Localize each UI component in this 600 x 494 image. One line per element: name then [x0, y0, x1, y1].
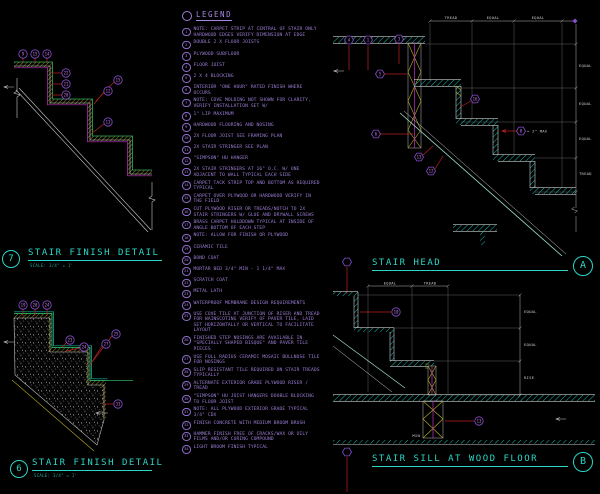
svg-text:33: 33 [116, 401, 121, 406]
cad-sheet: 9 15 14 22 21 20 15 12 13 7 STAIR FINISH… [0, 0, 600, 494]
svg-text:24: 24 [45, 302, 50, 307]
legend-item-number: 3 [182, 52, 191, 61]
svg-text:13: 13 [417, 154, 422, 159]
legend-item-number: 30 [182, 395, 191, 404]
legend-item-text: NOTE: COVE MOLDING NOT SHOWN FOR CLARITY… [194, 98, 323, 109]
legend-item-text: USE COVE TILE AT JUNCTION OF RISER AND T… [194, 312, 323, 334]
legend-item: 10 2X FLOOR JOIST SEE FRAMING PLAN [182, 134, 322, 143]
legend-item: 23 METAL LATH [182, 289, 322, 298]
legend-item: 9 HARDWOOD FLOORING AND NOSING [182, 123, 322, 132]
svg-text:15: 15 [116, 77, 121, 82]
balloon-marker: 8 [517, 127, 526, 135]
stair-head-title: STAIR HEAD [372, 258, 568, 271]
legend-item-text: HARDWOOD FLOORING AND NOSING [194, 123, 274, 129]
legend-item-number: 18 [182, 234, 191, 243]
balloon-marker: 23 [66, 336, 74, 344]
legend-item-text: NOTE: ALL PLYWOOD EXTERIOR GRADE TYPICAL… [194, 407, 323, 418]
legend-item-text: CARPET OVER PLYWOOD OR HARDWOOD VERIFY I… [194, 194, 323, 205]
svg-text:TREAD: TREAD [424, 280, 437, 285]
svg-text:23: 23 [68, 337, 73, 342]
legend-item-number: 8 [182, 112, 191, 121]
legend-item-number: 5 [182, 74, 191, 83]
balloon-marker: 14 [43, 50, 51, 58]
balloon-marker: 15 [114, 76, 122, 84]
legend-item-text: 2X STAIR STRINGERS AT 16" O.C. W/ ONE AD… [194, 167, 323, 178]
legend-item: 16 CUT PLYWOOD RISER OR TREADS/NOTCH TO … [182, 207, 322, 218]
legend-item-text: NOTE: ALLOW FOR FINISH OR PLYWOOD [194, 233, 289, 239]
legend-item-text: CUT PLYWOOD RISER OR TREADS/NOTCH TO 2X … [194, 207, 323, 218]
balloon-marker: 10 [392, 308, 400, 316]
legend-item-number: 20 [182, 256, 191, 265]
dim-end-marker [573, 19, 578, 24]
legend-item: 33 HAMMER FINISH FREE OF CRACKS/WAX OR O… [182, 432, 322, 443]
balloon-marker: 33 [114, 400, 122, 408]
legend-item-text: NOTE: CARPET STRIP AT CENTRAL OF STAIR O… [194, 27, 323, 38]
balloon-marker: 20 [62, 91, 70, 99]
legend-item: 2 DOUBLE 2 X FLOOR JOISTS [182, 40, 322, 49]
legend-item-text: SCRATCH COAT [194, 278, 228, 284]
legend-item-text: FINISHED STEP NOSINGS ARE AVAILABLE IN "… [194, 336, 323, 353]
balloon-marker: 13 [415, 153, 424, 161]
legend-title: LEGEND [196, 10, 232, 21]
svg-text:EQUAL: EQUAL [532, 15, 545, 20]
balloon-marker: 3 [395, 35, 404, 43]
legend-item-text: CERAMIC TILE [194, 245, 228, 251]
legend-item-number: 14 [182, 181, 191, 190]
detail-b-letter: B [573, 452, 593, 472]
stair-head-drawing: TREAD EQUAL EQUAL EQUAL EQUAL EQUAL TREA… [330, 0, 600, 256]
section-flag [340, 446, 354, 494]
legend-item-number: 33 [182, 432, 191, 441]
legend-item-number: 15 [182, 194, 191, 203]
legend-item: 32 FINISH CONCRETE WITH MEDIUM BROOM BRU… [182, 421, 322, 430]
legend-item-text: 2 X 4 BLOCKING [194, 74, 234, 80]
legend-item-text: BRASS CARPET HOLDDOWN TYPICAL AT INSIDE … [194, 220, 323, 231]
legend-item-text: MORTAR BED 3/4" MIN - 1 1/4" MAX [194, 267, 286, 273]
legend-item-number: 2 [182, 41, 191, 50]
legend-item: 31 NOTE: ALL PLYWOOD EXTERIOR GRADE TYPI… [182, 407, 322, 418]
legend-item-number: 1 [182, 28, 191, 37]
legend-item-text: HAMMER FINISH FREE OF CRACKS/WAX OR OILY… [194, 432, 323, 443]
legend-item-text: DOUBLE 2 X FLOOR JOISTS [194, 40, 260, 46]
stair-sill-title: STAIR SILL AT WOOD FLOOR [372, 454, 568, 467]
legend-item-text: ALTERNATE EXTERIOR GRADE PLYWOOD RISER /… [194, 381, 323, 392]
legend-item: 5 2 X 4 BLOCKING [182, 74, 322, 83]
detail-7-scale: SCALE: 3/4" = 1' [30, 263, 73, 268]
legend-item-number: 22 [182, 279, 191, 288]
legend-item: 34 LIGHT BROOM FINISH TYPICAL [182, 445, 322, 454]
legend-item-number: 16 [182, 208, 191, 217]
detail-6-number: 6 [10, 460, 28, 478]
svg-text:14: 14 [45, 51, 50, 56]
svg-text:27: 27 [104, 341, 109, 346]
svg-text:12: 12 [429, 168, 434, 173]
legend-item-text: BOND COAT [194, 256, 220, 262]
balloon-marker: 12 [427, 167, 436, 175]
balloon-marker: 13 [104, 118, 112, 126]
legend-item: 30 "SIMPSON" HU JOIST HANGERS DOUBLE BLO… [182, 394, 322, 405]
legend-item-number: 32 [182, 421, 191, 430]
detail-6-title: STAIR FINISH DETAIL [32, 458, 152, 471]
balloon-marker: 6 [372, 130, 381, 138]
legend-item-number: 21 [182, 267, 191, 276]
legend-item-text: CARPET TACK STRIP TOP AND BOTTOM AS REQU… [194, 181, 323, 192]
svg-text:EQUAL: EQUAL [579, 63, 592, 68]
legend-item-text: "SIMPSON" HU JOIST HANGERS DOUBLE BLOCKI… [194, 394, 323, 405]
svg-text:24: 24 [82, 344, 87, 349]
stair-finish-detail-7-drawing: 9 15 14 22 21 20 15 12 13 [0, 30, 180, 245]
legend-item-text: WATERPROOF MEMBRANE DESIGN REQUIREMENTS [194, 301, 306, 307]
svg-text:TREAD: TREAD [579, 171, 592, 176]
legend-item: 20 BOND COAT [182, 256, 322, 265]
legend-item-text: 2X FLOOR JOIST SEE FRAMING PLAN [194, 134, 283, 140]
legend-item-text: USE FULL RADIUS CERAMIC MOSAIC BULLNOSE … [194, 355, 323, 366]
legend-item-number: 28 [182, 368, 191, 377]
balloon-marker: 25 [112, 330, 120, 338]
legend-item: 11 2X STAIR STRINGER SEE PLAN [182, 145, 322, 154]
svg-text:20: 20 [64, 92, 69, 97]
detail-6-scale: SCALE: 3/4" = 1' [34, 473, 77, 478]
legend-item: 15 CARPET OVER PLYWOOD OR HARDWOOD VERIF… [182, 194, 322, 205]
legend-item-number: 25 [182, 312, 191, 321]
legend-item-number: 17 [182, 221, 191, 230]
legend-item-number: 7 [182, 99, 191, 108]
svg-text:20: 20 [33, 302, 38, 307]
legend-item-text: PLYWOOD SUBFLOOR [194, 52, 240, 58]
balloon-marker: 19 [19, 301, 27, 309]
svg-text:21: 21 [64, 81, 69, 86]
svg-text:13: 13 [106, 119, 111, 124]
legend-header: LEGEND [182, 10, 322, 21]
stair-sill-drawing: EQUAL TREAD EQUAL EQUAL RISE MIN [330, 280, 600, 450]
legend-item: 28 SLIP RESISTANT TILE REQUIRED ON STAIR… [182, 368, 322, 379]
legend-item: 1 NOTE: CARPET STRIP AT CENTRAL OF STAIR… [182, 27, 322, 38]
legend-item: 24 WATERPROOF MEMBRANE DESIGN REQUIREMEN… [182, 301, 322, 310]
legend-bullet-icon [182, 11, 192, 21]
detail-7-title: STAIR FINISH DETAIL [28, 248, 162, 261]
svg-text:10: 10 [394, 309, 399, 314]
legend-item: 3 PLYWOOD SUBFLOOR [182, 52, 322, 61]
legend-item-number: 19 [182, 245, 191, 254]
balloon-marker: 15 [31, 50, 39, 58]
balloon-marker: 12 [104, 87, 112, 95]
legend-item: 12 "SIMPSON" HU HANGER [182, 156, 322, 165]
legend-item-number: 13 [182, 168, 191, 177]
min-note: MIN [412, 433, 420, 438]
legend-item-text: METAL LATH [194, 289, 223, 295]
svg-text:16: 16 [473, 96, 478, 101]
balloon-marker: 4 [345, 36, 354, 44]
legend-item-text: INTERIOR "ONE HOUR" RATED FINISH WHERE O… [194, 85, 323, 96]
svg-text:EQUAL: EQUAL [487, 15, 500, 20]
svg-text:EQUAL: EQUAL [524, 342, 537, 347]
legend: LEGEND 1 NOTE: CARPET STRIP AT CENTRAL O… [182, 10, 322, 454]
balloon-marker: 16 [471, 95, 480, 103]
legend-item-number: 6 [182, 86, 191, 95]
legend-item-number: 11 [182, 146, 191, 155]
legend-item-text: LIGHT BROOM FINISH TYPICAL [194, 445, 269, 451]
legend-item-text: FLOOR JOIST [194, 63, 226, 69]
detail-a-letter: A [573, 256, 593, 276]
legend-item: 27 USE FULL RADIUS CERAMIC MOSAIC BULLNO… [182, 355, 322, 366]
balloon-marker: 24 [43, 301, 51, 309]
legend-item: 8 1" LIP MAXIMUM [182, 112, 322, 121]
svg-text:EQUAL: EQUAL [579, 136, 592, 141]
legend-item: 21 MORTAR BED 3/4" MIN - 1 1/4" MAX [182, 267, 322, 276]
svg-text:RISE: RISE [524, 375, 535, 380]
legend-item: 6 INTERIOR "ONE HOUR" RATED FINISH WHERE… [182, 85, 322, 96]
legend-item-number: 26 [182, 336, 191, 345]
legend-item-number: 23 [182, 290, 191, 299]
legend-item-text: SLIP RESISTANT TILE REQUIRED ON STAIR TR… [194, 368, 323, 379]
legend-item-number: 10 [182, 134, 191, 143]
legend-item-number: 34 [182, 445, 191, 454]
legend-item: 4 FLOOR JOIST [182, 63, 322, 72]
legend-item-number: 4 [182, 63, 191, 72]
balloon-marker: 22 [62, 69, 70, 77]
svg-text:EQUAL: EQUAL [384, 280, 397, 285]
legend-item: 25 USE COVE TILE AT JUNCTION OF RISER AN… [182, 312, 322, 334]
svg-text:15: 15 [33, 51, 38, 56]
balloon-marker: 5 [376, 70, 385, 78]
legend-item-text: "SIMPSON" HU HANGER [194, 156, 248, 162]
svg-text:12: 12 [106, 88, 111, 93]
legend-item-text: 2X STAIR STRINGER SEE PLAN [194, 145, 269, 151]
balloon-marker: 24 [80, 343, 88, 351]
legend-item-number: 31 [182, 408, 191, 417]
legend-item-number: 24 [182, 301, 191, 310]
legend-item: 14 CARPET TACK STRIP TOP AND BOTTOM AS R… [182, 181, 322, 192]
legend-item: 29 ALTERNATE EXTERIOR GRADE PLYWOOD RISE… [182, 381, 322, 392]
svg-text:19: 19 [21, 302, 26, 307]
legend-item-text: FINISH CONCRETE WITH MEDIUM BROOM BRUSH [194, 421, 306, 427]
legend-item: 22 SCRATCH COAT [182, 278, 322, 287]
balloon-marker: 21 [62, 80, 70, 88]
svg-text:EQUAL: EQUAL [524, 309, 537, 314]
legend-item: 26 FINISHED STEP NOSINGS ARE AVAILABLE I… [182, 336, 322, 353]
svg-text:13: 13 [477, 418, 482, 423]
balloon-marker: 1 [364, 36, 373, 44]
leader-lines [349, 44, 516, 169]
legend-item: 13 2X STAIR STRINGERS AT 16" O.C. W/ ONE… [182, 167, 322, 178]
svg-text:22: 22 [64, 70, 69, 75]
legend-item-number: 12 [182, 157, 191, 166]
balloon-marker: 20 [31, 301, 39, 309]
legend-item-number: 9 [182, 123, 191, 132]
svg-text:TREAD: TREAD [445, 15, 458, 20]
balloon-marker: 27 [102, 340, 110, 348]
legend-item: 18 NOTE: ALLOW FOR FINISH OR PLYWOOD [182, 233, 322, 242]
svg-text:EQUAL: EQUAL [579, 101, 592, 106]
balloon-marker: 13 [475, 417, 483, 425]
legend-item: 19 CERAMIC TILE [182, 245, 322, 254]
legend-list: 1 NOTE: CARPET STRIP AT CENTRAL OF STAIR… [182, 27, 322, 454]
detail-7-number: 7 [2, 250, 20, 268]
legend-item-number: 29 [182, 381, 191, 390]
balloon-marker: 9 [19, 50, 27, 58]
legend-item-number: 27 [182, 355, 191, 364]
stair-finish-detail-6-drawing: 19 20 24 23 24 27 25 33 [0, 285, 180, 457]
legend-item: 17 BRASS CARPET HOLDDOWN TYPICAL AT INSI… [182, 220, 322, 231]
legend-item-text: 1" LIP MAXIMUM [194, 112, 234, 118]
max-note: = 2" MAX [527, 129, 548, 134]
svg-text:25: 25 [114, 331, 119, 336]
legend-item: 7 NOTE: COVE MOLDING NOT SHOWN FOR CLARI… [182, 98, 322, 109]
